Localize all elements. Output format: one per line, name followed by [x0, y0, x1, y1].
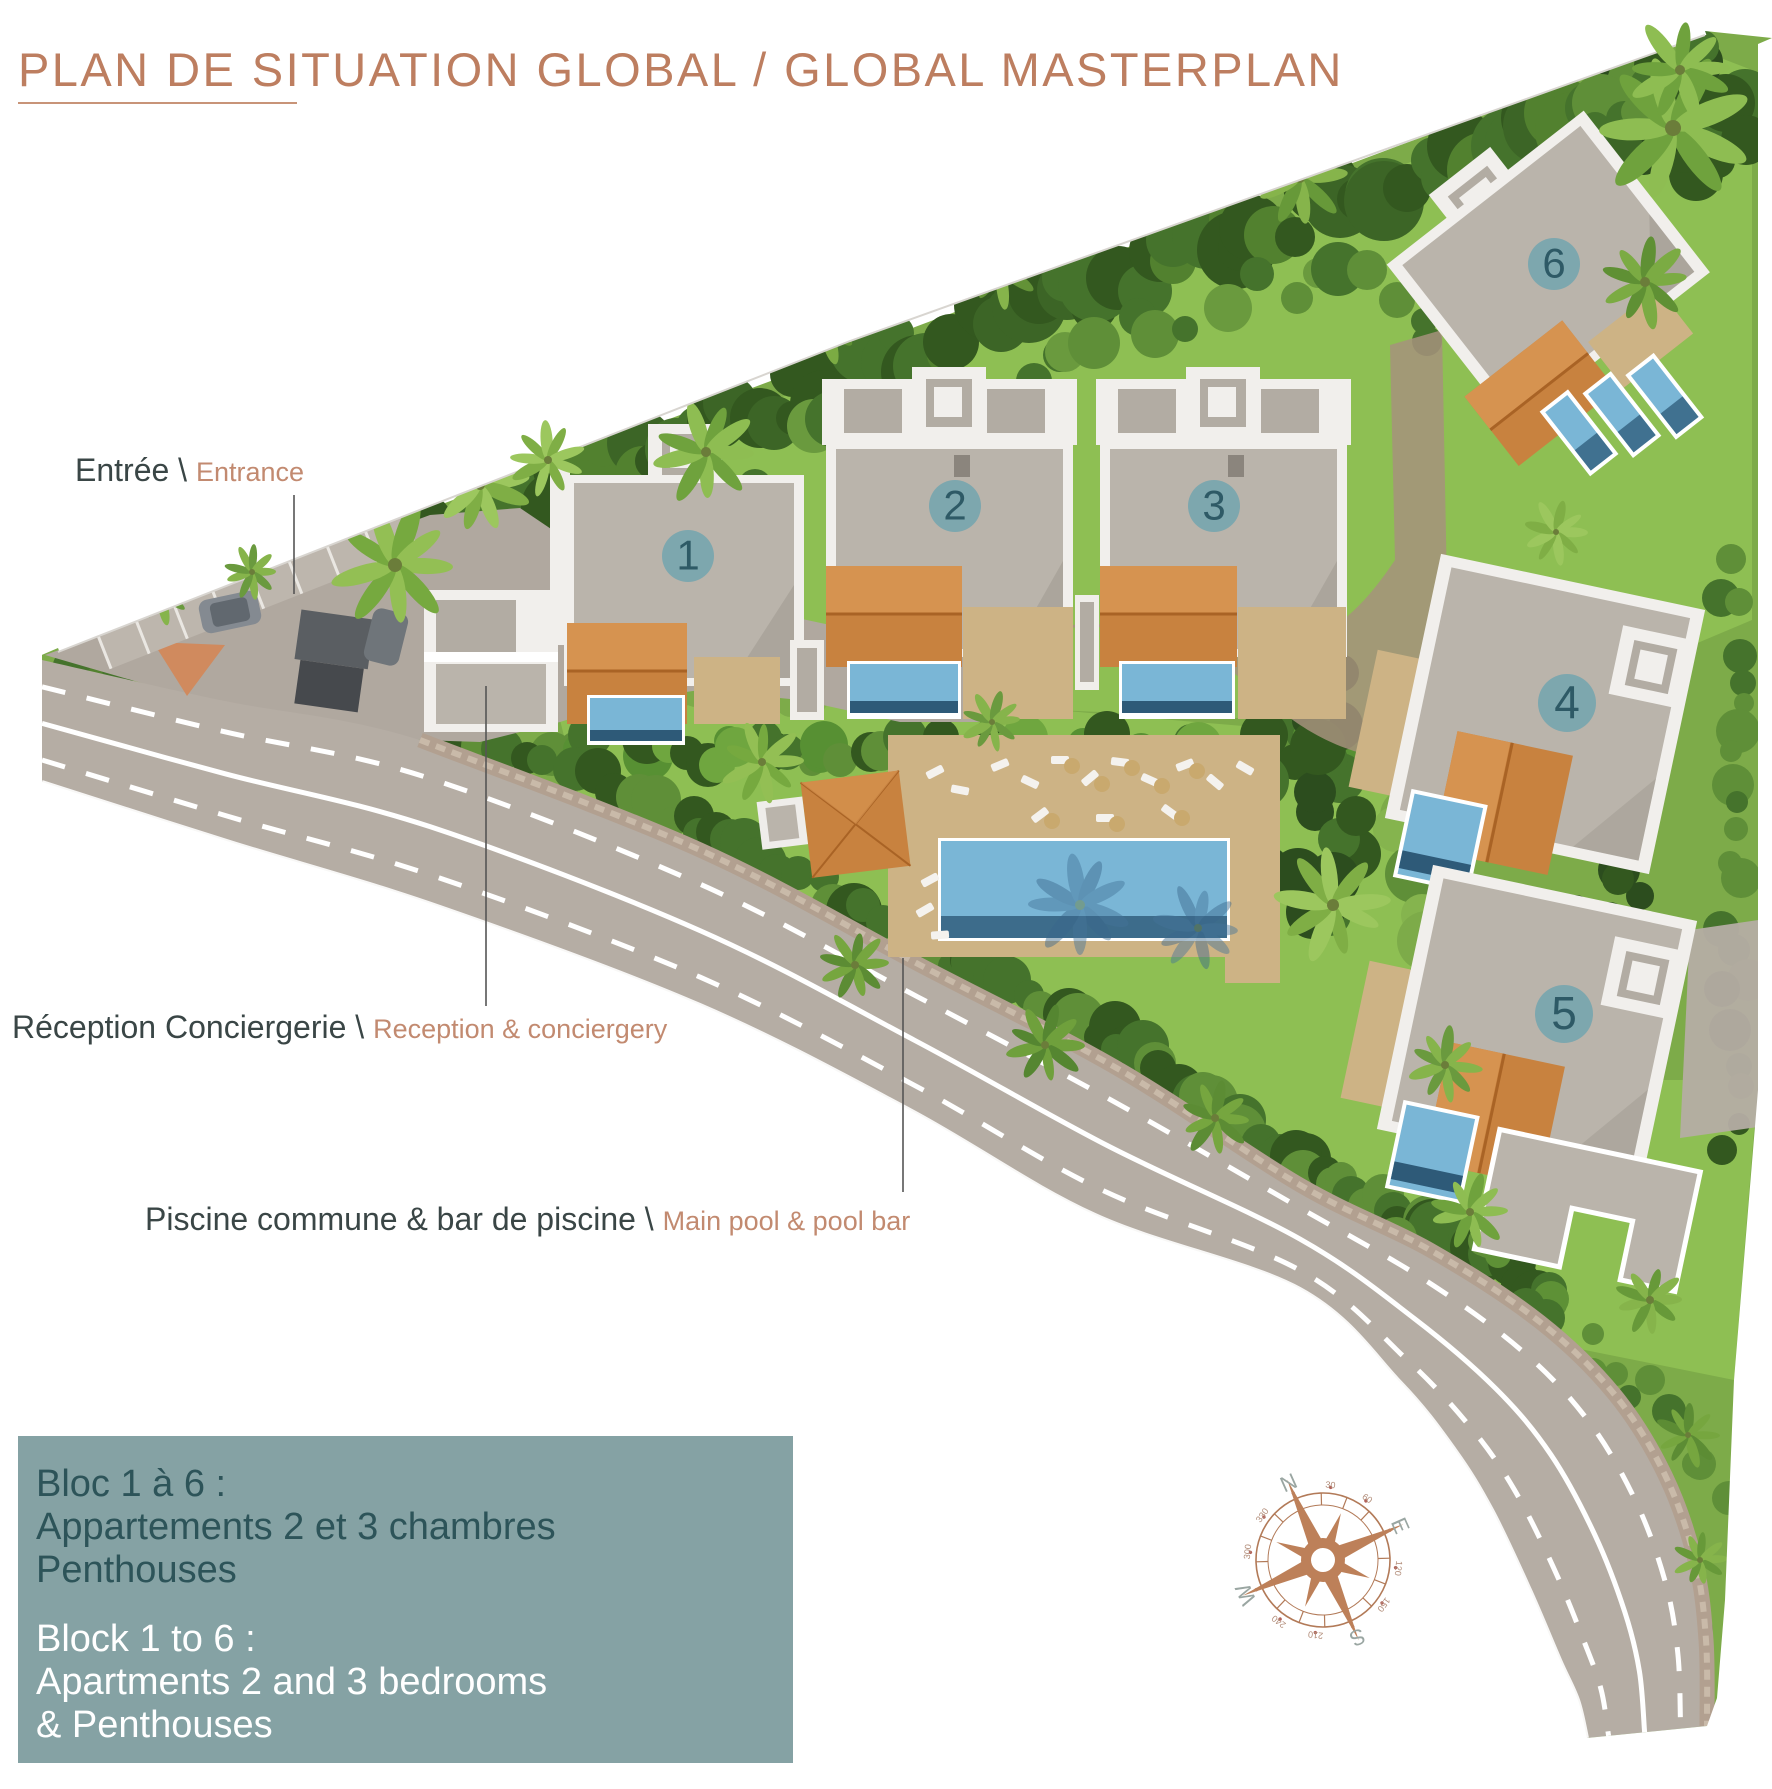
svg-text:Entrée \ Entrance: Entrée \ Entrance [75, 452, 304, 488]
svg-text:PLAN DE SITUATION GLOBAL / GLO: PLAN DE SITUATION GLOBAL / GLOBAL MASTER… [18, 43, 1344, 96]
svg-text:& Penthouses: & Penthouses [36, 1704, 273, 1746]
svg-text:120: 120 [1393, 1560, 1405, 1576]
svg-text:2: 2 [943, 482, 966, 529]
svg-text:Bloc 1 à 6 :: Bloc 1 à 6 : [36, 1463, 226, 1505]
svg-text:1: 1 [676, 532, 699, 579]
svg-text:3: 3 [1202, 482, 1225, 529]
svg-text:6: 6 [1542, 240, 1565, 287]
svg-text:Appartements 2 et 3 chambres: Appartements 2 et 3 chambres [36, 1506, 556, 1548]
svg-text:Penthouses: Penthouses [36, 1549, 237, 1591]
svg-text:300: 300 [1242, 1544, 1254, 1560]
svg-text:Block 1 to 6 :: Block 1 to 6 : [36, 1618, 256, 1660]
svg-text:Apartments 2 and 3 bedrooms: Apartments 2 and 3 bedrooms [36, 1661, 547, 1703]
svg-text:Réception Conciergerie \ Recep: Réception Conciergerie \ Reception & con… [12, 1009, 668, 1045]
svg-text:210: 210 [1308, 1629, 1324, 1641]
svg-text:5: 5 [1551, 987, 1577, 1039]
svg-text:Piscine commune & bar de pisci: Piscine commune & bar de piscine \ Main … [145, 1201, 910, 1237]
svg-text:4: 4 [1554, 676, 1580, 728]
svg-text:30: 30 [1325, 1479, 1336, 1490]
